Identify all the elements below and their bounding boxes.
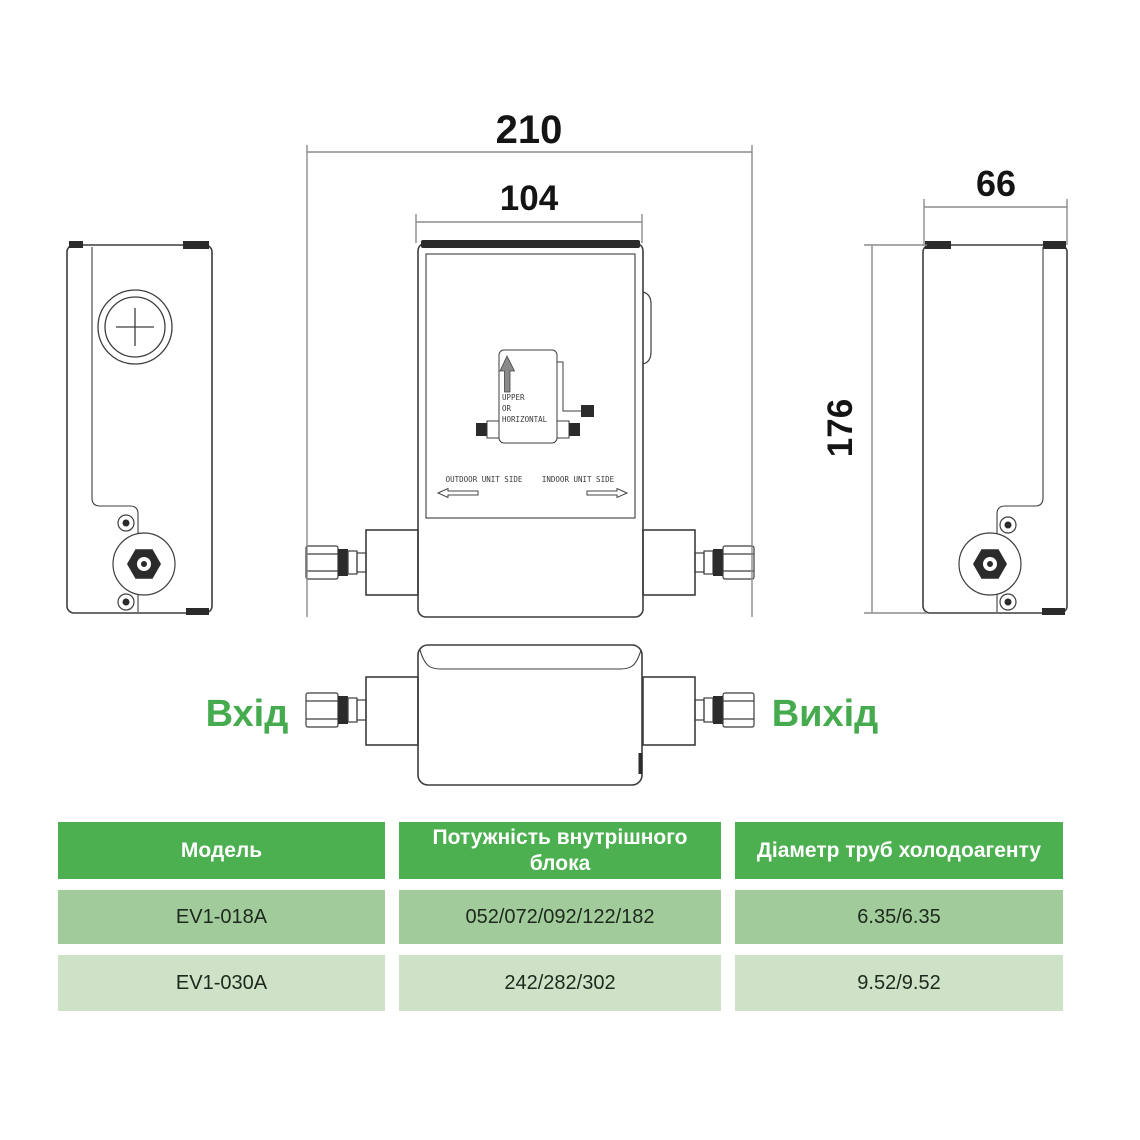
left-wing (366, 677, 418, 745)
table-row: EV1-018A 052/072/092/122/182 6.35/6.35 (58, 890, 1063, 944)
outlet-fitting (695, 693, 754, 727)
left-wing (366, 530, 418, 595)
table-header-row: Модель Потужність внутрішного блока Діам… (58, 822, 1063, 879)
row1-capacity: 052/072/092/122/182 (399, 890, 721, 944)
dim-depth: 66 (976, 163, 1016, 204)
top-cap (421, 240, 640, 248)
bottom-cap (1042, 608, 1065, 615)
row1-model: EV1-018A (58, 890, 385, 944)
hex-nut-port (959, 533, 1021, 595)
arrow-left-icon (438, 489, 478, 498)
spec-table: Модель Потужність внутрішного блока Діам… (58, 822, 1063, 1011)
header-model: Модель (58, 822, 385, 879)
side-bump (643, 292, 651, 364)
header-pipe-diameter: Діаметр труб холодоагенту (735, 822, 1063, 879)
top-cap (925, 241, 951, 249)
coil-wire (557, 362, 581, 411)
inlet-fitting (306, 546, 366, 579)
row2-capacity: 242/282/302 (399, 955, 721, 1011)
dim-height: 176 (821, 399, 860, 457)
outlet-label: Вихід (772, 693, 879, 735)
orientation-label-3: HORIZONTAL (502, 415, 548, 424)
dim-total-width: 210 (496, 108, 563, 152)
row2-model: EV1-030A (58, 955, 385, 1011)
valve-orientation-diagram (476, 350, 594, 443)
orientation-label-2: OR (502, 404, 512, 413)
bottom-cap (186, 608, 209, 615)
phillips-screw-icon (98, 290, 172, 364)
indoor-side-label: INDOOR UNIT SIDE (542, 475, 615, 484)
bottom-view (306, 645, 754, 785)
outdoor-side-label: OUTDOOR UNIT SIDE (446, 475, 523, 484)
product-drawing-page: 210 104 66 176 UPPER OR HORIZONTAL OUTDO… (0, 0, 1140, 1140)
top-cap (69, 241, 83, 248)
right-wing (643, 530, 695, 595)
inlet-fitting (306, 693, 366, 727)
top-cap (183, 241, 209, 249)
right-wing (643, 677, 695, 745)
dim-body-width: 104 (500, 179, 559, 218)
row1-diameter: 6.35/6.35 (735, 890, 1063, 944)
row2-diameter: 9.52/9.52 (735, 955, 1063, 1011)
up-arrow-icon (500, 356, 515, 392)
right-side-view (923, 241, 1067, 615)
header-indoor-capacity: Потужність внутрішного блока (399, 822, 721, 879)
orientation-label-1: UPPER (502, 393, 525, 402)
dimension-lines (307, 145, 1067, 617)
inlet-label: Вхід (206, 693, 289, 735)
outlet-fitting (695, 546, 754, 579)
hex-nut-port (113, 533, 175, 595)
left-side-view (67, 241, 212, 615)
arrow-right-icon (587, 489, 627, 498)
front-view (306, 240, 754, 617)
coil-connector (581, 405, 594, 417)
top-cap (1043, 241, 1066, 249)
technical-drawing: 210 104 66 176 UPPER OR HORIZONTAL OUTDO… (0, 0, 1140, 810)
table-row: EV1-030A 242/282/302 9.52/9.52 (58, 955, 1063, 1011)
